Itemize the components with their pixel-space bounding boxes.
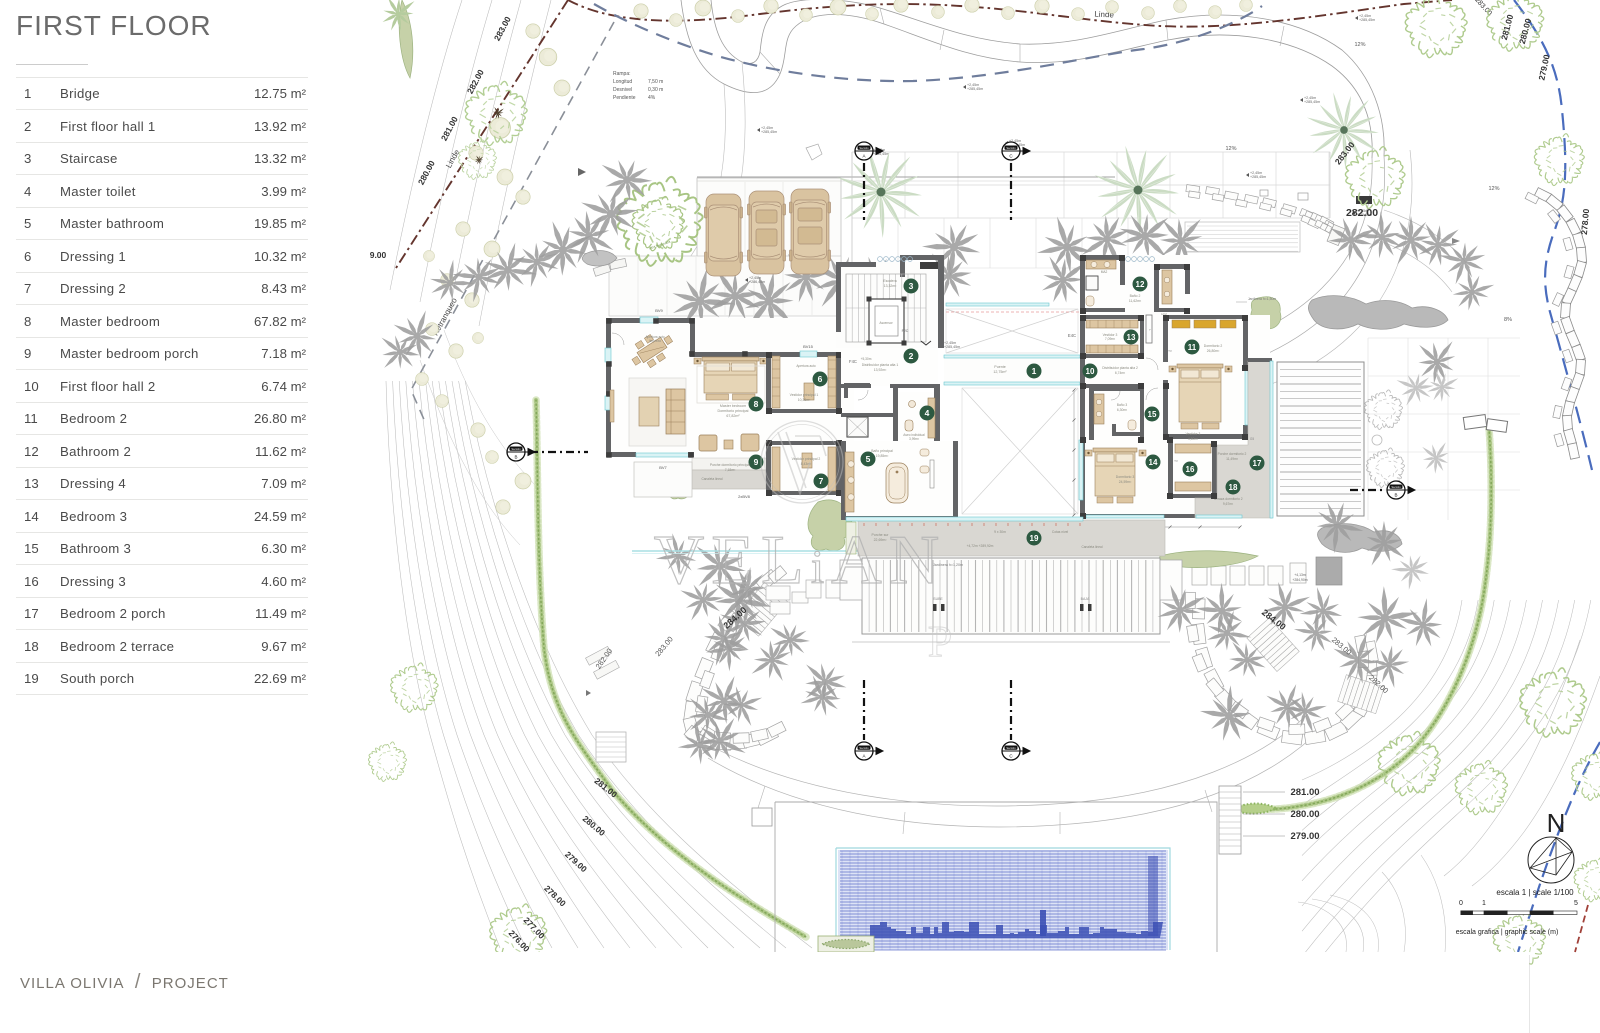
svg-text:Porche dormitorio 2: Porche dormitorio 2 [1218,452,1247,456]
svg-text:10: 10 [1086,367,1095,376]
svg-text:278.00: 278.00 [1579,208,1591,235]
svg-text:escala 1 | scale 1/100: escala 1 | scale 1/100 [1496,888,1574,897]
svg-text:2xBV8: 2xBV8 [738,494,751,499]
svg-text:281.00: 281.00 [1290,787,1319,798]
svg-text:Ascensor: Ascensor [879,321,893,325]
svg-text:279.00: 279.00 [1536,53,1551,81]
svg-text:+285,45m: +285,45m [1250,175,1266,179]
svg-text:12%: 12% [1225,146,1236,152]
svg-text:2: 2 [909,351,914,361]
svg-text:Sección: Sección [511,447,521,451]
svg-text:12%: 12% [1488,186,1499,192]
svg-text:TV: TV [1168,349,1172,353]
svg-text:280.00: 280.00 [416,159,437,187]
svg-text:TV: TV [1174,459,1178,463]
svg-text:6: 6 [818,374,823,384]
svg-text:16: 16 [1186,465,1195,474]
svg-text:67,82m²: 67,82m² [726,414,740,418]
svg-text:24,59m²: 24,59m² [1119,480,1132,484]
svg-text:0,30 m: 0,30 m [648,87,663,93]
svg-text:G5: G5 [1250,437,1254,441]
svg-text:BV7: BV7 [659,465,667,470]
svg-text:283.00: 283.00 [492,15,513,43]
svg-text:8%: 8% [1504,317,1512,323]
svg-text:19,85m²: 19,85m² [876,454,889,458]
svg-text:Dormitorio 3: Dormitorio 3 [1116,475,1135,479]
svg-text:Canaleta lineal: Canaleta lineal [701,477,722,481]
svg-text:3: 3 [909,281,914,291]
svg-text:Escalera: Escalera [883,279,896,283]
svg-text:278.00: 278.00 [542,883,568,908]
svg-text:F2C: F2C [902,329,909,333]
svg-text:9.00: 9.00 [370,250,387,260]
svg-text:Dormitorio 2: Dormitorio 2 [1204,344,1223,348]
svg-text:escala grafica | graphic sca: escala grafica | graphic scale (m) [1456,929,1559,936]
svg-text:279.00: 279.00 [563,849,589,874]
svg-text:A: A [862,754,865,759]
svg-text:Sección: Sección [859,146,869,150]
svg-text:4,60m²: 4,60m² [1188,437,1199,441]
svg-text:1: 1 [1482,900,1486,907]
svg-text:1: 1 [1032,366,1037,376]
svg-text:6,74m²: 6,74m² [1115,371,1126,375]
svg-text:13,92m²: 13,92m² [874,368,887,372]
svg-text:14: 14 [1149,458,1158,467]
svg-text:Distribuidor planta alta 2: Distribuidor planta alta 2 [1102,366,1138,370]
svg-text:Terraza dormitorio 2: Terraza dormitorio 2 [1213,497,1242,501]
svg-text:7,18m²: 7,18m² [725,468,736,472]
svg-text:Baño principal: Baño principal [871,449,893,453]
svg-text:Baño 3: Baño 3 [1117,403,1128,407]
svg-text:BV15: BV15 [803,344,814,349]
svg-text:Desnivel: Desnivel [613,87,632,93]
svg-text:Apertura auto: Apertura auto [796,364,816,368]
svg-text:Puente: Puente [994,365,1005,369]
svg-text:282.00: 282.00 [1346,207,1378,219]
svg-text:Jardinera h=1,50m: Jardinera h=1,50m [1248,297,1277,301]
svg-text:Sección: Sección [1006,746,1016,750]
svg-text:+285,45m: +285,45m [1359,18,1375,22]
svg-text:+285,45m: +285,45m [761,130,777,134]
svg-text:BV9: BV9 [655,308,663,313]
svg-text:7,09m²: 7,09m² [1105,337,1116,341]
svg-text:11: 11 [1188,343,1197,352]
svg-text:Longitud: Longitud [613,79,632,85]
svg-text:13: 13 [1127,333,1136,342]
svg-text:BAJA: BAJA [1081,597,1090,601]
svg-text:Sección: Sección [1006,146,1016,150]
svg-text:10,36m²: 10,36m² [798,398,811,402]
svg-text:+285,45m: +285,45m [873,152,889,156]
svg-text:280.00: 280.00 [1290,809,1319,820]
svg-text:B: B [1394,493,1397,498]
svg-text:Cotas nivel: Cotas nivel [1052,530,1069,534]
svg-text:11,62m²: 11,62m² [1129,299,1142,303]
svg-text:+4,13m: +4,13m [1294,573,1306,577]
svg-text:26,80m²: 26,80m² [1207,349,1220,353]
svg-text:281.00: 281.00 [439,115,460,143]
svg-text:Distribuidor planta alta 1: Distribuidor planta alta 1 [862,363,899,367]
svg-text:19: 19 [1030,534,1039,543]
svg-text:8: 8 [754,399,759,409]
svg-text:7: 7 [819,476,824,486]
svg-text:13,32m²: 13,32m² [884,284,897,288]
svg-text:276.00: 276.00 [507,928,532,954]
svg-text:E4C: E4C [1068,333,1076,338]
svg-text:Dormitorio principal: Dormitorio principal [718,409,749,413]
svg-text:9 x 30m: 9 x 30m [994,530,1006,534]
svg-text:Master bedroom: Master bedroom [720,404,746,408]
svg-text:12: 12 [1136,280,1145,289]
svg-text:15: 15 [1148,410,1157,419]
svg-text:limpieza: limpieza [649,339,661,343]
svg-text:Sección: Sección [859,746,869,750]
svg-text:9,67m²: 9,67m² [1223,502,1234,506]
svg-text:280.00: 280.00 [1517,17,1533,45]
svg-text:+285,45m: +285,45m [1304,100,1320,104]
svg-text:0: 0 [1459,900,1463,907]
svg-text:Baño 2: Baño 2 [1130,294,1141,298]
svg-text:Vestidor principal 1: Vestidor principal 1 [790,393,819,397]
svg-text:12%: 12% [1354,42,1365,48]
svg-text:N: N [1547,808,1566,838]
svg-text:+285,45m: +285,45m [944,345,960,349]
svg-text:+286,40m: +286,40m [749,280,765,284]
svg-text:280.00: 280.00 [581,814,608,839]
svg-text:MA2: MA2 [1101,270,1108,274]
svg-text:A: A [862,154,865,159]
svg-text:12,75m²: 12,75m² [993,370,1007,374]
svg-text:+284,90m: +284,90m [1292,578,1307,582]
svg-text:11,49m²: 11,49m² [1226,457,1239,461]
svg-text:279.00: 279.00 [1290,831,1319,842]
svg-text:F4C: F4C [849,359,857,364]
svg-text:3,99m²: 3,99m² [909,437,919,441]
svg-text:+285,45m: +285,45m [967,87,983,91]
svg-text:Canaleta lineal: Canaleta lineal [1081,545,1102,549]
svg-text:7,50 m: 7,50 m [648,79,663,85]
svg-text:4%: 4% [648,95,656,101]
svg-text:17: 17 [1253,459,1262,468]
svg-text:5: 5 [1574,900,1578,907]
svg-text:Rampa:: Rampa: [613,71,631,77]
svg-text:B: B [514,455,517,460]
svg-text:+4,72m +289,92m: +4,72m +289,92m [967,544,994,548]
svg-text:18: 18 [1229,483,1238,492]
svg-text:5: 5 [866,454,871,464]
svg-text:277.00: 277.00 [522,915,547,941]
svg-text:6,30m²: 6,30m² [1117,408,1128,412]
svg-text:Sección: Sección [1391,485,1401,489]
svg-text:Pendiente: Pendiente [613,95,636,101]
svg-text:Vestidor 3: Vestidor 3 [1186,432,1201,436]
svg-text:9: 9 [754,457,759,467]
svg-text:+5,30m: +5,30m [861,357,872,361]
svg-text:P: P [928,617,952,666]
svg-text:4: 4 [925,408,930,418]
svg-text:Porche dormitorio principal: Porche dormitorio principal [710,463,751,467]
svg-text:VELiAN: VELiAN [654,522,947,599]
svg-text:283.00: 283.00 [653,635,675,658]
